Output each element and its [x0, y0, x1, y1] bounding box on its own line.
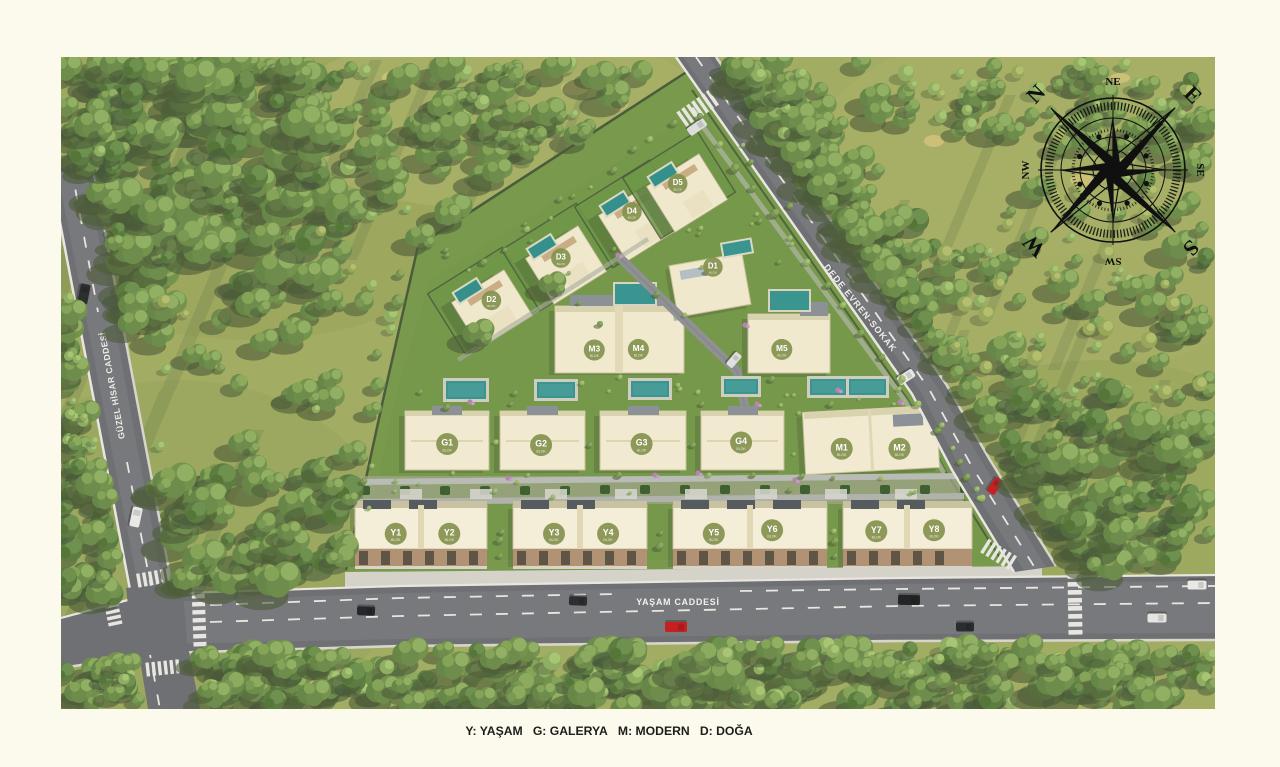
svg-text:G1: G1	[441, 438, 453, 448]
svg-text:BLOK: BLOK	[634, 354, 644, 358]
svg-text:Y: YAŞAM G: GALERYA M: MOD: Y: YAŞAM G: GALERYA M: MODERN D: DOĞA	[465, 723, 753, 738]
svg-text:BLOK: BLOK	[628, 216, 637, 220]
svg-text:BLOK: BLOK	[603, 538, 613, 542]
svg-text:SE: SE	[1194, 163, 1206, 176]
svg-text:D2: D2	[486, 295, 497, 304]
svg-text:G2: G2	[535, 439, 547, 449]
svg-text:BLOK: BLOK	[557, 262, 566, 266]
svg-text:BLOK: BLOK	[709, 271, 718, 275]
svg-text:M4: M4	[633, 343, 645, 353]
svg-text:G3: G3	[636, 438, 648, 448]
svg-text:BLOK: BLOK	[590, 354, 600, 358]
svg-text:G4: G4	[735, 436, 747, 446]
svg-text:BLOK: BLOK	[445, 538, 455, 542]
svg-text:BLOK: BLOK	[391, 538, 401, 542]
svg-text:D3: D3	[556, 253, 567, 262]
svg-text:BLOK: BLOK	[767, 535, 777, 539]
svg-text:BLOK: BLOK	[709, 538, 719, 542]
svg-text:M2: M2	[893, 442, 905, 452]
svg-text:BLOK: BLOK	[929, 535, 939, 539]
svg-text:M1: M1	[836, 442, 848, 452]
svg-text:BLOK: BLOK	[872, 536, 882, 540]
svg-text:NE: NE	[1105, 76, 1120, 88]
svg-text:M3: M3	[588, 344, 600, 354]
svg-text:M5: M5	[776, 343, 788, 353]
svg-text:BLOK: BLOK	[895, 453, 905, 457]
svg-text:Y7: Y7	[871, 525, 882, 535]
svg-text:BLOK: BLOK	[536, 449, 546, 453]
svg-text:Y8: Y8	[929, 524, 940, 534]
svg-text:Y2: Y2	[444, 527, 455, 537]
svg-text:NW: NW	[1020, 161, 1032, 180]
svg-text:BLOK: BLOK	[837, 453, 847, 457]
svg-text:BLOK: BLOK	[487, 304, 496, 308]
svg-text:Y6: Y6	[767, 524, 778, 534]
svg-text:BLOK: BLOK	[549, 538, 559, 542]
svg-text:BLOK: BLOK	[637, 448, 647, 452]
svg-text:D1: D1	[708, 261, 719, 270]
svg-text:BLOK: BLOK	[736, 447, 746, 451]
svg-text:Y3: Y3	[549, 527, 560, 537]
svg-text:BLOK: BLOK	[777, 354, 787, 358]
svg-text:Y1: Y1	[390, 527, 401, 537]
svg-text:D5: D5	[673, 178, 684, 187]
svg-text:BLOK: BLOK	[443, 448, 453, 452]
svg-text:SW: SW	[1104, 255, 1121, 267]
svg-text:Y4: Y4	[603, 527, 614, 537]
svg-text:BLOK: BLOK	[674, 187, 683, 191]
svg-text:YAŞAM CADDESİ: YAŞAM CADDESİ	[636, 597, 719, 607]
svg-text:Y5: Y5	[708, 527, 719, 537]
svg-text:D4: D4	[627, 206, 638, 215]
